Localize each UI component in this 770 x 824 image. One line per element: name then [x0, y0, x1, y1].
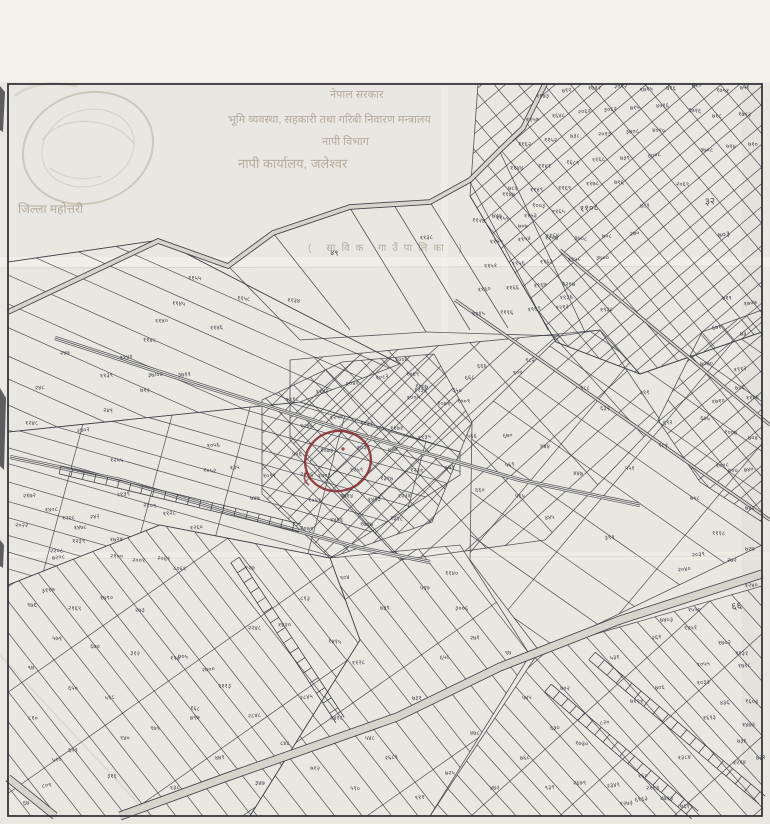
svg-text:२०६९: २०६९: [157, 555, 171, 563]
svg-text:६७: ६७: [23, 800, 31, 807]
svg-text:१०३१: १०३१: [360, 420, 374, 428]
svg-text:१४०: १४०: [120, 735, 130, 742]
svg-text:१०७६: १०७६: [300, 422, 313, 430]
svg-text:१२५५: १२५५: [110, 457, 123, 464]
svg-text:नापी कार्यालय, जलेश्वर: नापी कार्यालय, जलेश्वर: [238, 156, 348, 171]
svg-text:७१०: ७१०: [748, 141, 758, 148]
svg-text:२०६९: २०६९: [676, 181, 689, 188]
svg-text:१०३३: १०३३: [696, 679, 710, 687]
svg-text:६७५: ६७५: [700, 415, 710, 423]
svg-text:१३८४: १३८४: [677, 754, 691, 762]
svg-text:६५१: ६५१: [445, 464, 455, 472]
svg-text:७०३: ७०३: [717, 229, 731, 240]
svg-text:१३८: १३८: [170, 784, 180, 792]
svg-text:११६६: ११६६: [506, 284, 519, 292]
svg-text:६६८: ६६८: [464, 374, 475, 382]
svg-text:१०५६: १०५६: [206, 442, 220, 450]
svg-text:७१२: ७१२: [561, 87, 572, 95]
svg-text:७२७: ७२७: [745, 546, 756, 553]
svg-text:१६९३: १६९३: [703, 714, 717, 722]
svg-text:११५५: ११५५: [188, 275, 201, 282]
svg-text:२०१३: २०१३: [598, 131, 611, 138]
svg-text:२४७: २४७: [60, 350, 71, 357]
svg-text:७६८: ७६८: [520, 754, 530, 762]
svg-text:७४२: ७४२: [745, 505, 755, 512]
svg-text:५७९: ५७९: [52, 635, 62, 643]
svg-text:१७९०: १७९०: [100, 595, 113, 602]
svg-text:११४०: ११४०: [155, 318, 168, 325]
svg-text:११२८: ११२८: [352, 659, 366, 667]
svg-text:१३५: १३५: [229, 464, 240, 472]
svg-text:१७१३: १७१३: [738, 111, 751, 119]
svg-text:२८४८: २८४८: [248, 712, 262, 720]
svg-text:११५७: ११५७: [526, 116, 540, 124]
svg-text:७१८: ७१८: [712, 113, 722, 120]
svg-text:१७५१: १७५१: [716, 87, 730, 95]
svg-text:११६५: ११६५: [552, 208, 566, 216]
svg-text:२१००: २१००: [110, 553, 123, 560]
svg-text:नेपाल सरकार: नेपाल सरकार: [330, 88, 384, 101]
svg-text:भूमि व्यवस्था, सहकारी तथा गरिब: भूमि व्यवस्था, सहकारी तथा गरिबी निवारण म…: [228, 113, 431, 127]
svg-text:१२७३: १२७३: [619, 800, 633, 808]
svg-text:१४५१: १४५१: [684, 624, 697, 632]
svg-text:६७०: ६७०: [502, 432, 513, 440]
svg-text:१००५: १००५: [407, 394, 421, 402]
svg-text:९३९: ९३९: [544, 784, 555, 792]
svg-text:१११६: १११६: [500, 309, 513, 317]
svg-text:६६०: ६६०: [475, 487, 485, 494]
svg-text:७१६: ७१६: [666, 85, 676, 92]
svg-text:९०४: ९०४: [339, 574, 350, 582]
svg-text:११३८: ११३८: [420, 234, 434, 242]
svg-text:९००: ९००: [512, 369, 523, 377]
svg-text:७२६: ७२६: [735, 384, 745, 392]
svg-text:१२३४: १२३४: [398, 492, 411, 500]
svg-text:३१६: ३१६: [107, 773, 117, 780]
svg-text:११५६: ११५६: [512, 260, 526, 268]
svg-text:११३९: ११३९: [100, 372, 114, 380]
svg-text:७५१: ७५१: [739, 84, 750, 92]
svg-text:२६१: २६१: [651, 634, 662, 642]
svg-text:१४७८: १४७८: [73, 524, 87, 532]
svg-text:१७०२: १७०२: [718, 639, 732, 647]
svg-text:६३२: ६३२: [600, 405, 610, 413]
svg-text:१४२०: १४२०: [278, 622, 291, 629]
svg-text:६५०: ६५०: [452, 387, 462, 395]
svg-text:८०६९: ८०६९: [173, 565, 187, 573]
svg-text:७१९: ७१९: [722, 295, 732, 302]
svg-text:९११: ९११: [414, 794, 425, 802]
svg-text:४४४: ४४४: [540, 443, 550, 450]
svg-text:४७२: ४७२: [490, 785, 500, 792]
svg-text:९८८: ९८८: [580, 385, 590, 392]
svg-text:११५३: ११५३: [524, 212, 537, 220]
svg-text:७०६: ७०६: [654, 684, 665, 692]
svg-text:४७९: ४७९: [215, 754, 225, 762]
svg-text:११४६: ११४६: [210, 324, 223, 332]
svg-text:५४८: ५४८: [365, 735, 375, 742]
svg-text:६७०: ६७०: [90, 643, 100, 651]
scanned-cadastral-map-page: जिल्ला: महोत्तरी गा.वि.स./न.पा.- २५ नं. …: [0, 0, 770, 824]
svg-text:९७९: ९७९: [150, 725, 160, 732]
svg-text:७३६: ७३६: [737, 738, 747, 745]
svg-text:७८१: ७८१: [508, 185, 518, 192]
cadastral-map-svg: नेपाल सरकारभूमि व्यवस्था, सहकारी तथा गरि…: [0, 0, 770, 824]
svg-text:११७१: ११७१: [390, 425, 403, 432]
svg-text:२१०९: २१०९: [143, 502, 157, 510]
svg-text:१४१५: १४१५: [328, 638, 342, 646]
svg-text:७३: ७३: [740, 331, 747, 338]
svg-text:३७११: ३७११: [178, 371, 192, 379]
svg-text:१७१७: १७१७: [360, 521, 374, 529]
svg-text:७११: ७११: [140, 387, 150, 395]
svg-text:७००: ७००: [728, 467, 738, 475]
svg-text:११३१: ११३१: [735, 650, 748, 657]
svg-text:४७१३: ४७१३: [660, 795, 674, 803]
svg-text:३१२: ३१२: [130, 650, 140, 658]
svg-text:३२: ३२: [704, 196, 715, 208]
svg-text:१६८९: १६८९: [566, 159, 580, 167]
svg-text:२४८: २४८: [35, 384, 45, 392]
svg-text:७०८: ७०८: [690, 495, 700, 502]
svg-text:१०४९: १०४९: [406, 371, 419, 378]
svg-text:७१२९: ७१२९: [630, 698, 643, 706]
svg-text:४०१६: ४०१६: [656, 102, 669, 110]
svg-text:३४७: ३४७: [255, 780, 266, 787]
svg-text:१२३९: १२३९: [72, 538, 85, 545]
svg-text:५६६: ५६६: [467, 433, 477, 440]
svg-text:७९७: ७९७: [190, 714, 201, 722]
svg-text:१४१३: १४१३: [368, 496, 382, 504]
svg-text:१६४८: १६४८: [552, 112, 566, 120]
svg-text:५०६: ५०६: [292, 451, 302, 458]
svg-text:३७०८: ३७०८: [700, 147, 713, 154]
svg-text:६६: ६६: [731, 600, 743, 612]
svg-text:११६८: ११६८: [592, 156, 606, 164]
svg-text:१२१४: १२१४: [733, 759, 747, 767]
svg-text:११४२: ११४२: [316, 388, 330, 396]
svg-text:४४५: ४४५: [544, 514, 555, 522]
svg-text:१२१७: १२१७: [562, 281, 576, 288]
svg-text:१२४८: १२४८: [25, 420, 38, 427]
svg-text:५६९: ५६९: [505, 461, 515, 469]
svg-text:८०९: ८०९: [41, 782, 52, 790]
svg-text:७३२: ७३२: [756, 754, 766, 762]
svg-text:७०८: ७०८: [602, 233, 612, 240]
svg-text:१२३९: १२३९: [410, 467, 424, 475]
svg-text:६७१: ६७१: [711, 324, 722, 332]
svg-text:१६८: १६८: [190, 705, 200, 713]
svg-text:७४०३: ७४०३: [660, 617, 673, 624]
svg-text:७१०: ७१०: [691, 82, 701, 90]
svg-text:१००८: १००८: [395, 356, 409, 364]
svg-text:५९७: ५९७: [420, 585, 431, 592]
svg-text:४७८: ४७८: [470, 730, 480, 737]
svg-text:१७३०: १७३०: [575, 740, 589, 748]
svg-text:५४५: ५४५: [522, 694, 532, 702]
svg-text:२४२: २४२: [90, 513, 100, 521]
svg-text:६६६: ६६६: [477, 363, 487, 370]
svg-text:२७३: २७३: [135, 607, 145, 614]
svg-text:३७०८: ३७०८: [574, 235, 588, 243]
svg-text:११५१: ११५१: [484, 262, 497, 270]
svg-text:११४८: ११४८: [143, 337, 156, 344]
svg-text:११५८: ११५८: [237, 295, 251, 303]
svg-text:५५१: ५५१: [625, 465, 635, 472]
svg-text:५३१: ५३१: [609, 654, 620, 662]
svg-text:१७१४: १७१४: [340, 493, 353, 500]
svg-text:७३१: ७३१: [412, 695, 422, 702]
svg-text:६५०: ६५०: [68, 685, 78, 692]
svg-text:११६२: ११६२: [518, 141, 531, 148]
svg-text:११२८: ११२८: [162, 510, 176, 518]
svg-text:१६०: १६०: [638, 772, 648, 780]
svg-text:१०५२: १०५२: [203, 467, 217, 475]
svg-text:९७६: ९७६: [27, 602, 37, 609]
svg-text:४४७: ४४७: [573, 470, 584, 478]
svg-text:२१६३: २१६३: [646, 785, 659, 792]
svg-text:२१६९: २१६९: [68, 605, 81, 612]
svg-text:१११५: १११५: [472, 310, 485, 318]
svg-text:२६७९: २६७९: [573, 780, 586, 787]
svg-text:२१७२: २१७२: [23, 492, 37, 500]
svg-text:१११३: १११३: [218, 683, 231, 690]
svg-text:जिल्ला महोत्तरी: जिल्ला महोत्तरी: [18, 202, 84, 216]
svg-text:३७००: ३७००: [596, 255, 609, 262]
svg-text:१०४२: १०४२: [345, 380, 359, 388]
svg-text:११६९: ११६९: [558, 185, 571, 192]
svg-text:३१३: ३१३: [604, 534, 615, 542]
svg-text:११०८: ११०८: [579, 202, 599, 214]
svg-text:११३४: ११३४: [287, 297, 301, 305]
svg-text:७४७: ७४७: [250, 495, 261, 502]
svg-text:४२७: ४२७: [387, 446, 398, 454]
svg-text:११४१: ११४१: [538, 163, 551, 170]
svg-text:७३८: ७३८: [570, 133, 580, 140]
svg-text:२००९: २००९: [132, 557, 145, 565]
svg-text:७०४: ७०४: [748, 435, 758, 442]
svg-text:१२४०: १२४०: [744, 582, 758, 590]
svg-text:७१७: ७१७: [726, 143, 737, 151]
svg-text:११०४: ११०४: [746, 394, 760, 402]
svg-text:७०२: ७०२: [560, 685, 570, 693]
svg-text:१२७: १२७: [245, 565, 256, 572]
svg-text:११४९: ११४९: [530, 186, 543, 194]
svg-text:११०७: ११०७: [545, 235, 559, 242]
svg-text:६९२: ६९२: [663, 419, 673, 427]
svg-text:५१८: ५१८: [104, 694, 115, 702]
svg-text:१४७३: १४७३: [742, 722, 755, 729]
svg-text:२०६२: २०६२: [578, 108, 592, 116]
svg-text:७४७: ७४७: [492, 213, 503, 220]
svg-text:१११८: १११८: [712, 530, 725, 537]
svg-text:८२०: ८२०: [599, 719, 610, 727]
svg-text:१००३: १००३: [532, 202, 546, 210]
svg-text:१५५०: १५५०: [688, 606, 701, 614]
svg-text:१४१८: १४१८: [330, 715, 343, 722]
svg-text:११५५: ११५५: [490, 238, 504, 246]
svg-text:८१०: ८१०: [28, 715, 38, 722]
svg-text:१३१८: १३१८: [390, 515, 404, 523]
svg-text:१७२४: १७२४: [110, 536, 124, 544]
svg-text:६३०: ६३०: [550, 725, 560, 732]
svg-text:१०७९: १०७९: [437, 400, 451, 408]
svg-text:११४५: ११४५: [172, 300, 186, 308]
svg-text:१४१९: १४१९: [330, 517, 343, 524]
svg-text:५६५: ५६५: [515, 493, 525, 500]
svg-text:१६०३: १६०३: [745, 698, 759, 706]
svg-text:११४०: ११४०: [445, 570, 458, 577]
svg-text:४८९: ४८९: [640, 202, 650, 210]
svg-text:३७०८: ३७०८: [626, 128, 640, 136]
svg-text:७६१: ७६१: [680, 803, 690, 810]
svg-text:३००६: ३००६: [455, 605, 468, 612]
svg-text:११२४: ११२४: [472, 217, 486, 225]
svg-text:२०७९: २०७९: [300, 525, 314, 533]
svg-text:७०७०: ७०७०: [700, 360, 713, 368]
svg-text:१००९: १००९: [457, 398, 470, 405]
svg-text:४९: ४९: [330, 248, 339, 258]
svg-text:१२०८: १२०८: [62, 514, 75, 522]
svg-text:१२५९: १२५९: [350, 467, 363, 474]
svg-text:८४८: ८४८: [280, 740, 290, 747]
svg-text:६०९: ६०९: [68, 747, 78, 754]
svg-text:२०३९: २०३९: [692, 551, 706, 559]
svg-text:१४०८: १४०८: [45, 506, 59, 514]
svg-text:७०५: ७०५: [178, 653, 188, 661]
svg-text:३०१२: ३०१२: [614, 83, 627, 90]
svg-text:९७: ९७: [505, 649, 513, 657]
svg-text:१११८: १११८: [286, 396, 300, 404]
svg-text:४३६: ४३६: [720, 699, 730, 707]
svg-text:११७३: ११७३: [536, 93, 549, 100]
svg-text:३०६२: ३०६२: [604, 106, 618, 114]
svg-text:१७१६: १७१६: [688, 107, 702, 115]
svg-text:२४९: २४९: [103, 407, 113, 415]
svg-text:१०७३: १०७३: [320, 447, 334, 455]
svg-text:१००१: १००१: [318, 472, 332, 480]
svg-text:१७१२: १७१२: [588, 85, 601, 92]
svg-text:७०७: ७०७: [518, 223, 529, 230]
svg-text:१००७: १००७: [415, 383, 429, 391]
svg-text:१७१८: १७१८: [738, 662, 752, 670]
svg-text:७१५: ७१५: [630, 104, 640, 112]
svg-text:७२५: ७२५: [445, 770, 455, 777]
svg-text:नापी विभाग: नापी विभाग: [322, 135, 370, 148]
svg-text:७१२: ७१२: [310, 765, 320, 773]
svg-text:९८२: ९८२: [525, 357, 535, 365]
svg-text:२७१: २७१: [470, 635, 480, 642]
svg-text:७३९: ७३९: [380, 605, 390, 612]
svg-text:३७/००: ३७/००: [148, 372, 163, 379]
svg-text:८१३: ८१३: [300, 595, 310, 603]
svg-text:१२६०: १२६०: [190, 524, 204, 532]
svg-text:११६३: ११६३: [540, 258, 554, 266]
svg-text:७३९: ७३९: [620, 155, 630, 162]
svg-text:५१०: ५१०: [52, 756, 62, 764]
svg-text:१९३८: १९३८: [600, 306, 614, 314]
svg-text:५९०: ५९०: [350, 785, 360, 793]
svg-text:४०१०: ४०१०: [652, 127, 666, 135]
svg-text:२७०: २७०: [629, 230, 640, 238]
svg-text:१००७: १००७: [724, 429, 738, 437]
svg-text:२०२२: २०२२: [15, 522, 28, 530]
svg-text:१०९१: १०९१: [263, 472, 276, 480]
svg-text:२७००: २७००: [201, 666, 215, 674]
svg-text:७४०: ७४०: [743, 466, 754, 474]
svg-text:११५२: ११५२: [544, 137, 557, 144]
svg-text:७१६: ७१६: [614, 179, 624, 187]
svg-text:१०५१: १०५१: [308, 497, 321, 504]
svg-text:९८१: ९८१: [658, 442, 668, 450]
svg-text:२११: २११: [640, 389, 650, 397]
svg-text:२२४८: २२४८: [248, 625, 261, 632]
svg-text:१३१७: १३१७: [380, 475, 394, 483]
svg-text:२७२: २७२: [727, 557, 737, 564]
svg-text:११४४: ११४४: [510, 165, 523, 172]
svg-text:११७८: ११७८: [586, 180, 600, 188]
